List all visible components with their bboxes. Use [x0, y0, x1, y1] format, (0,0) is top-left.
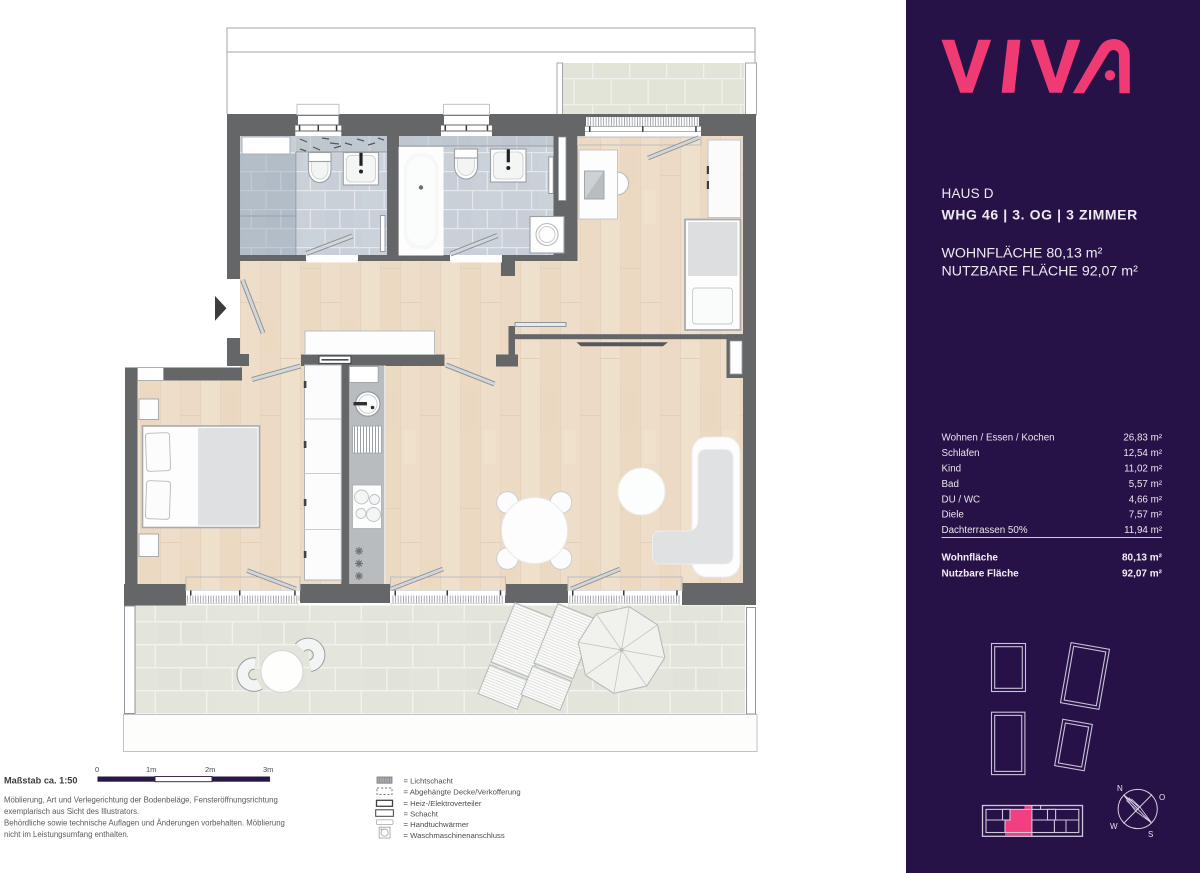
svg-text:= Lichtschacht: = Lichtschacht — [404, 777, 454, 786]
svg-text:= Abgehängte Decke/Verkofferun: = Abgehängte Decke/Verkofferung — [404, 788, 521, 797]
svg-text:Bad: Bad — [942, 479, 959, 490]
svg-text:2m: 2m — [205, 765, 215, 774]
svg-text:O: O — [1159, 793, 1165, 802]
svg-text:11,94 m²: 11,94 m² — [1124, 525, 1163, 536]
svg-text:Schlafen: Schlafen — [942, 448, 980, 459]
svg-text:WHG 46 | 3. OG | 3 ZIMMER: WHG 46 | 3. OG | 3 ZIMMER — [942, 207, 1138, 223]
svg-text:exemplarisch aus Sicht des Ill: exemplarisch aus Sicht des Illustrators. — [4, 807, 139, 816]
svg-text:1m: 1m — [146, 765, 156, 774]
svg-text:Wohnfläche: Wohnfläche — [942, 553, 999, 564]
svg-text:NUTZBARE FLÄCHE 92,07 m²: NUTZBARE FLÄCHE 92,07 m² — [942, 263, 1139, 280]
svg-text:3m: 3m — [263, 765, 273, 774]
svg-text:HAUS D: HAUS D — [942, 186, 994, 201]
svg-text:Kind: Kind — [942, 464, 962, 475]
svg-text:4,66 m²: 4,66 m² — [1129, 494, 1163, 505]
svg-text:Nutzbare Fläche: Nutzbare Fläche — [942, 569, 1020, 580]
svg-text:= Heiz-/Elektroverteiler: = Heiz-/Elektroverteiler — [404, 799, 482, 808]
svg-text:Wohnen / Essen / Kochen: Wohnen / Essen / Kochen — [942, 433, 1055, 444]
svg-text:Diele: Diele — [942, 510, 965, 521]
svg-text:= Handtuchwärmer: = Handtuchwärmer — [404, 820, 470, 829]
svg-text:WOHNFLÄCHE 80,13 m²: WOHNFLÄCHE 80,13 m² — [942, 245, 1103, 262]
svg-text:12,54 m²: 12,54 m² — [1123, 448, 1162, 459]
svg-text:5,57 m²: 5,57 m² — [1129, 479, 1163, 490]
svg-text:N: N — [1117, 784, 1123, 793]
svg-text:11,02 m²: 11,02 m² — [1124, 464, 1163, 475]
svg-text:92,07 m²: 92,07 m² — [1122, 569, 1163, 580]
svg-text:Dachterrassen 50%: Dachterrassen 50% — [942, 525, 1028, 536]
svg-text:26,83 m²: 26,83 m² — [1123, 433, 1162, 444]
svg-text:W: W — [1110, 822, 1118, 831]
svg-text:S: S — [1148, 830, 1153, 839]
svg-text:80,13 m²: 80,13 m² — [1122, 553, 1163, 564]
svg-text:Möblierung, Art und Verlegeric: Möblierung, Art und Verlegerichtung der … — [4, 796, 278, 805]
svg-text:Behördliche sowie technische A: Behördliche sowie technische Auflagen un… — [4, 819, 285, 828]
svg-text:Maßstab ca. 1:50: Maßstab ca. 1:50 — [4, 776, 78, 786]
svg-text:0: 0 — [95, 765, 99, 774]
svg-text:nicht im Leistungsumfang entha: nicht im Leistungsumfang enthalten. — [4, 830, 129, 839]
svg-text:DU / WC: DU / WC — [942, 494, 981, 505]
svg-text:= Waschmaschinenanschluss: = Waschmaschinenanschluss — [404, 831, 505, 840]
svg-text:= Schacht: = Schacht — [404, 810, 439, 819]
svg-text:7,57 m²: 7,57 m² — [1129, 510, 1163, 521]
